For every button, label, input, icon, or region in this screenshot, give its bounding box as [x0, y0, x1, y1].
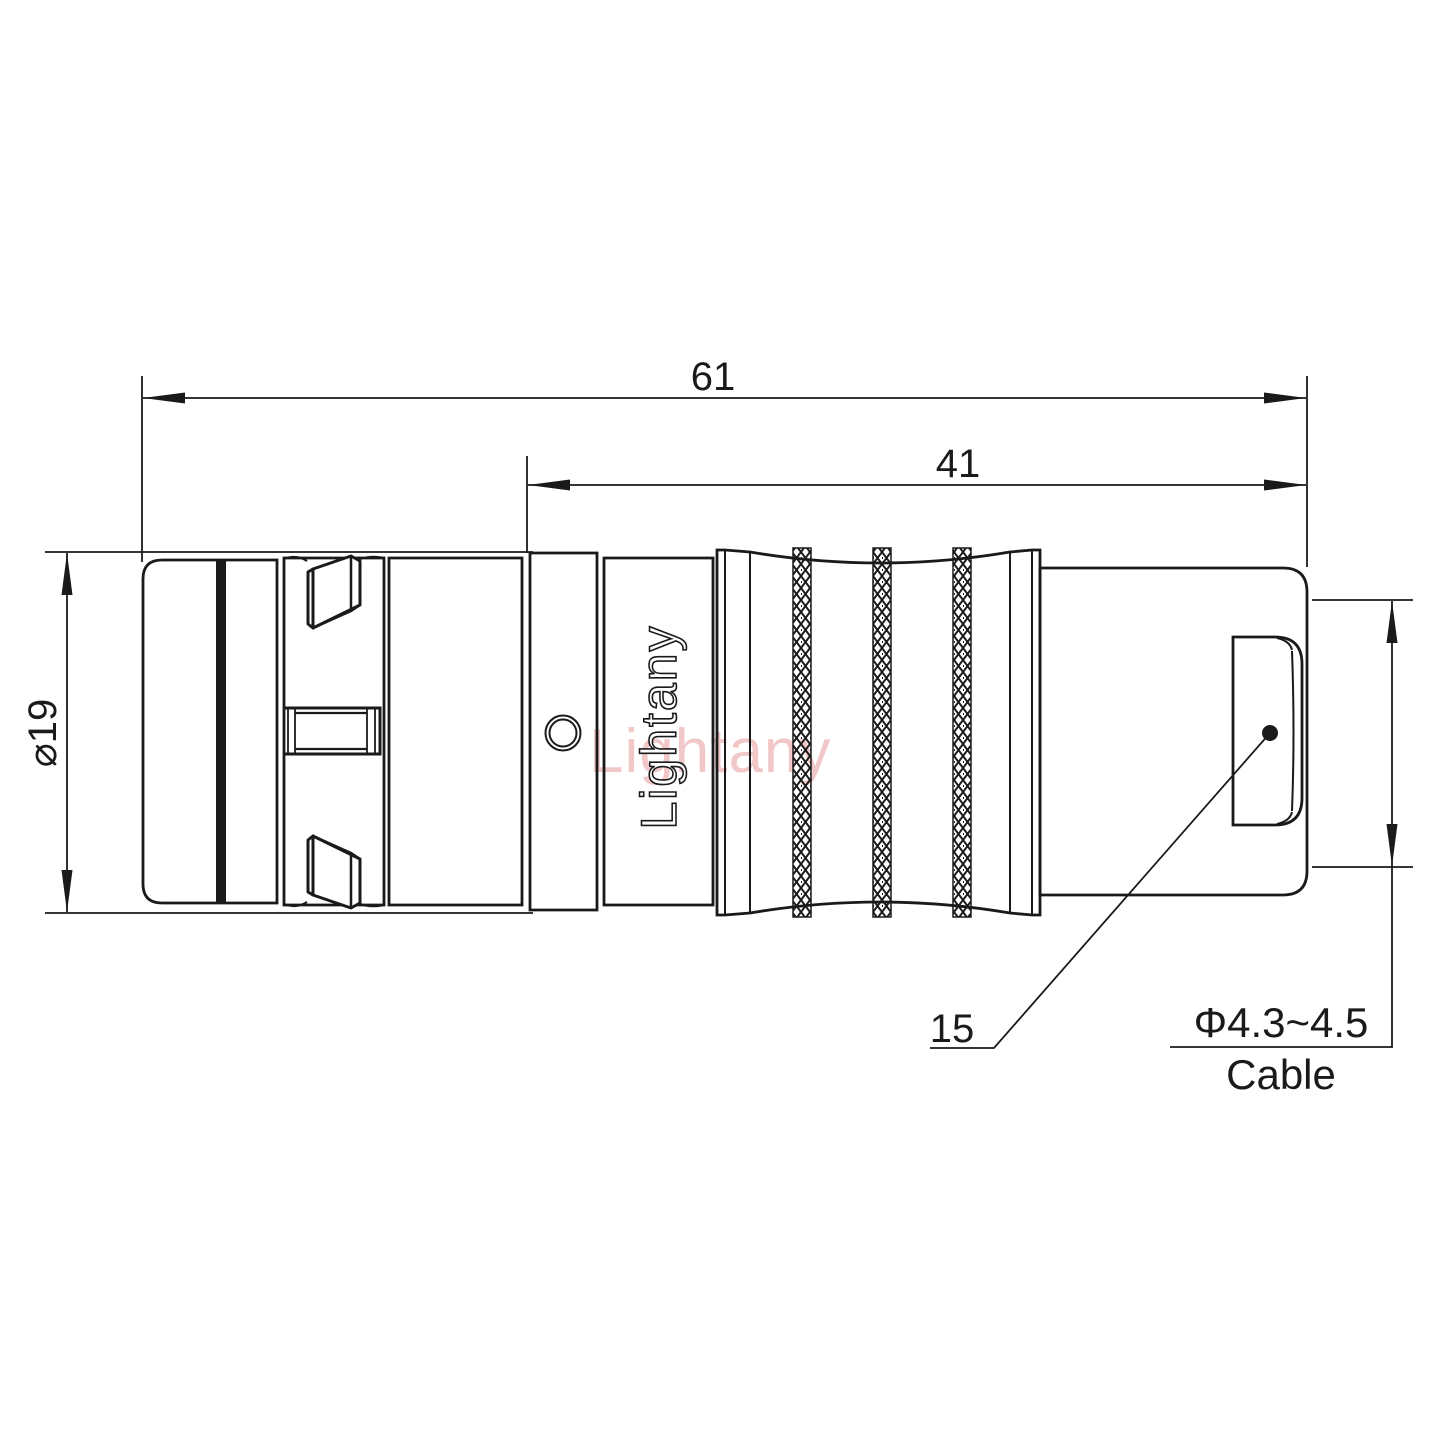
arrow-right-icon — [1264, 480, 1306, 491]
arrow-up-icon — [1387, 601, 1398, 643]
arrow-left-icon — [528, 480, 570, 491]
arrow-down-icon — [62, 870, 73, 912]
knurl-band — [873, 548, 891, 917]
technical-drawing-page: Lightany — [0, 0, 1440, 1440]
knurl-band — [953, 548, 971, 917]
dim-text-overall-length: 61 — [691, 355, 736, 399]
arrow-up-icon — [62, 553, 73, 595]
dim-text-cable-diameter: Φ4.3~4.5 — [1194, 999, 1369, 1046]
arrow-right-icon — [1264, 393, 1306, 404]
body-logo-text: Lightany — [631, 624, 687, 829]
dim-text-rear-length: 41 — [936, 442, 981, 486]
arrow-left-icon — [143, 393, 185, 404]
knurl-band — [793, 548, 811, 917]
dim-text-boot-length: 15 — [930, 1007, 975, 1051]
arrow-down-icon — [1387, 824, 1398, 866]
connector-drawing: Lightany — [0, 0, 1440, 1440]
leader-dot — [1262, 725, 1278, 741]
dim-text-body-diameter: ⌀19 — [21, 699, 65, 768]
dim-text-cable-word: Cable — [1226, 1051, 1336, 1098]
seal-band — [216, 560, 226, 903]
